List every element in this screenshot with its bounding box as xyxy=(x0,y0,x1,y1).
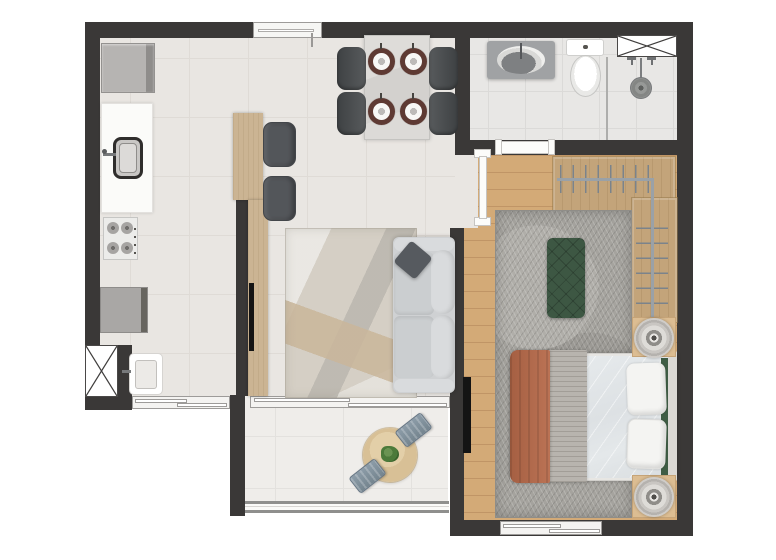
island-counter-upper xyxy=(233,113,263,200)
dining-chair xyxy=(337,47,366,90)
bathroom-door-post xyxy=(548,139,555,155)
toilet-bowl xyxy=(570,55,601,97)
washing-machine xyxy=(100,287,148,333)
floor-plan-page: { "meta": { "type": "apartment-floor-pla… xyxy=(0,0,776,560)
closet-rod-top xyxy=(557,178,654,181)
shower-knob xyxy=(627,57,636,60)
balcony-glass-railing xyxy=(245,501,449,513)
sofa-seat-cushion xyxy=(394,316,434,378)
bed-knit-throw xyxy=(545,350,587,482)
cooktop xyxy=(103,217,138,260)
sofa-armrest xyxy=(394,379,454,392)
place-setting xyxy=(368,48,395,75)
bedroom-window xyxy=(500,521,602,535)
burner xyxy=(107,222,119,234)
sofa-back-cushion xyxy=(431,250,455,314)
shower-knob xyxy=(647,57,656,60)
sofa-back-cushion xyxy=(431,315,455,379)
kitchen-sink-basin xyxy=(119,143,137,173)
entry-door-swing xyxy=(311,33,313,47)
bedroom-window-pane xyxy=(503,524,561,528)
burner xyxy=(107,242,119,254)
entry-door xyxy=(253,22,322,38)
vanity-faucet xyxy=(520,43,522,59)
bathroom-door-post xyxy=(495,139,502,155)
nightstand-lamp xyxy=(634,477,674,517)
laundry-tank-basin xyxy=(135,360,157,389)
shower-drain xyxy=(630,77,652,99)
place-setting xyxy=(400,98,427,125)
wall-balcony-left xyxy=(230,395,245,516)
wall-right xyxy=(677,22,693,536)
entry-door-leaf-line xyxy=(258,29,314,32)
cooktop-controls xyxy=(134,224,136,254)
ventilation-shaft-top xyxy=(617,35,677,57)
dining-chair xyxy=(429,47,458,90)
green-tufted-bench xyxy=(547,238,585,318)
refrigerator xyxy=(101,43,155,93)
toilet-flush-button xyxy=(583,45,588,49)
ventilation-shaft-left xyxy=(85,345,118,397)
place-setting xyxy=(368,98,395,125)
sliding-door-pane xyxy=(348,403,447,407)
wall-left xyxy=(85,22,100,345)
wall-bottom-left-corner xyxy=(85,396,132,410)
burner xyxy=(121,242,133,254)
balcony-floor xyxy=(245,396,448,502)
service-window xyxy=(132,396,230,409)
bed-pillow xyxy=(626,362,667,415)
nightstand-lamp xyxy=(634,318,674,358)
bedroom-window-pane xyxy=(549,529,600,533)
bar-stool xyxy=(263,176,296,221)
laundry-tank xyxy=(129,353,163,395)
bed-terracotta-blanket xyxy=(510,350,550,483)
shower-glass-partition xyxy=(606,57,608,140)
bar-stool xyxy=(263,122,296,167)
dining-chair xyxy=(337,92,366,135)
bed-headboard xyxy=(668,351,677,481)
bedroom-tv xyxy=(463,377,471,453)
toilet-tank xyxy=(566,39,604,56)
island-tv xyxy=(249,283,254,351)
bathroom-door xyxy=(500,141,550,154)
balcony-plant xyxy=(381,446,399,462)
kitchen-faucet-handle xyxy=(102,149,107,154)
burner xyxy=(121,222,133,234)
closet-rod-side xyxy=(651,180,654,320)
dining-chair xyxy=(429,92,458,135)
sliding-door-pane xyxy=(254,398,350,402)
service-window-pane xyxy=(177,403,227,407)
bedroom-door-leaf xyxy=(479,156,487,219)
bed-pillow xyxy=(626,418,667,469)
kitchen-sink xyxy=(113,137,143,179)
place-setting xyxy=(400,48,427,75)
laundry-faucet xyxy=(122,370,131,373)
